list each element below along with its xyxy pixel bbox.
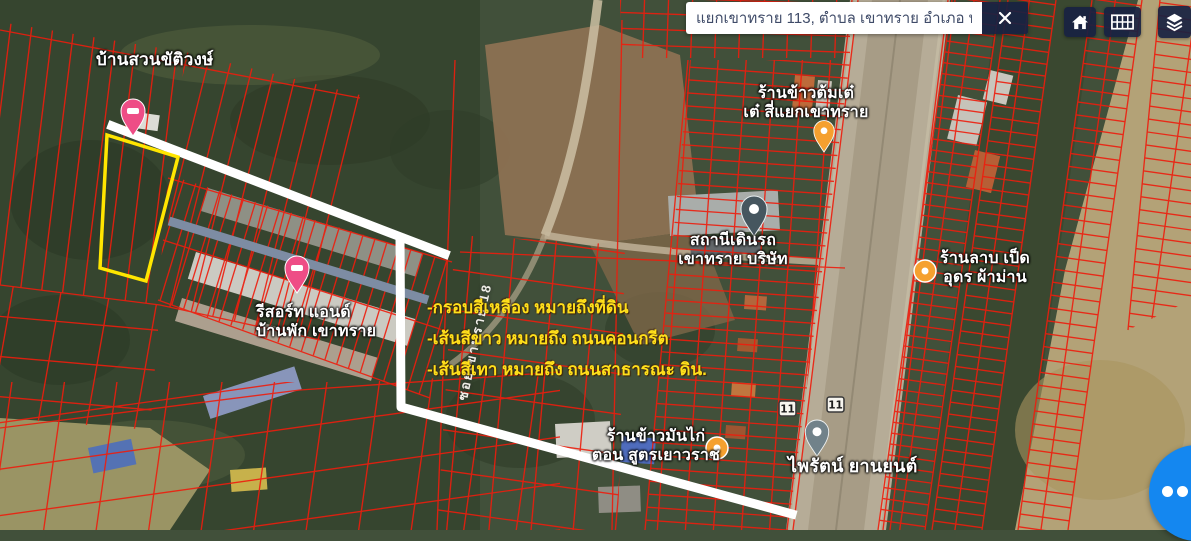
poi-label-line: สถานีเดินรถ: [678, 231, 788, 250]
close-search-button[interactable]: [982, 2, 1028, 34]
poi-label-line: ตอน สูตรเยาวราช: [592, 446, 720, 465]
poi-label-resort[interactable]: รีสอร์ท แอนด์ บ้านพัก เขาทราย: [256, 303, 376, 341]
route-shield-11: 11: [779, 401, 796, 416]
poi-label-bus-station[interactable]: สถานีเดินรถ เขาทราย บริษัท: [678, 231, 788, 269]
home-icon: [1070, 10, 1090, 34]
poi-label-line: รีสอร์ท แอนด์: [256, 303, 376, 322]
search-input[interactable]: [686, 2, 982, 34]
svg-text:11: 11: [780, 404, 795, 416]
poi-label-line: ร้านข้าวมันไก่: [592, 427, 720, 446]
poi-label-pairat[interactable]: ไพรัตน์ ยานยนต์: [788, 457, 917, 476]
three-dots-icon: [1162, 486, 1191, 497]
map-app: { "searchbar": { "query": "แยกเขาทราย 11…: [0, 0, 1191, 530]
home-button[interactable]: [1064, 7, 1096, 37]
search-bar: [686, 2, 1028, 34]
restaurant-glyph: [922, 268, 929, 275]
table-grid-button[interactable]: [1104, 7, 1141, 37]
poi-label-line: อุดร ผ้าม่าน: [940, 268, 1030, 287]
poi-label-khao-tom[interactable]: ร้านข้าวต้มเต๋ เต๋ สี่แยกเขาทราย: [743, 84, 868, 122]
close-icon: [996, 9, 1014, 27]
map-annotation-legend: -กรอบสีเหลือง หมายถึงที่ดิน -เส้นสีขาว ห…: [427, 292, 707, 385]
legend-line-white-road: -เส้นสีขาว หมายถึง ถนนคอนกรีต: [427, 323, 707, 354]
poi-label-line: เต๋ สี่แยกเขาทราย: [743, 103, 868, 122]
poi-label-line: ร้านข้าวต้มเต๋: [743, 84, 868, 103]
poi-label-khao-man-kai[interactable]: ร้านข้าวมันไก่ ตอน สูตรเยาวราช: [592, 427, 720, 465]
poi-label-line: ร้านลาบ เป็ด: [940, 249, 1030, 268]
poi-label-line: บ้านพัก เขาทราย: [256, 322, 376, 341]
poi-label-baan-suan[interactable]: บ้านสวนขัติวงษ์: [96, 50, 213, 69]
table-grid-icon: [1110, 11, 1135, 33]
legend-line-gray-road: -เส้นสีเทา หมายถึง ถนนสาธารณะ ดิน.: [427, 354, 707, 385]
layers-icon: [1164, 10, 1185, 34]
route-shield-11: 11: [827, 397, 844, 412]
legend-line-yellow-frame: -กรอบสีเหลือง หมายถึงที่ดิน: [427, 292, 707, 323]
poi-label-line: เขาทราย บริษัท: [678, 250, 788, 269]
layers-button[interactable]: [1158, 6, 1191, 38]
svg-text:11: 11: [828, 400, 843, 412]
poi-label-laab-ped[interactable]: ร้านลาบ เป็ด อุดร ผ้าม่าน: [940, 249, 1030, 287]
